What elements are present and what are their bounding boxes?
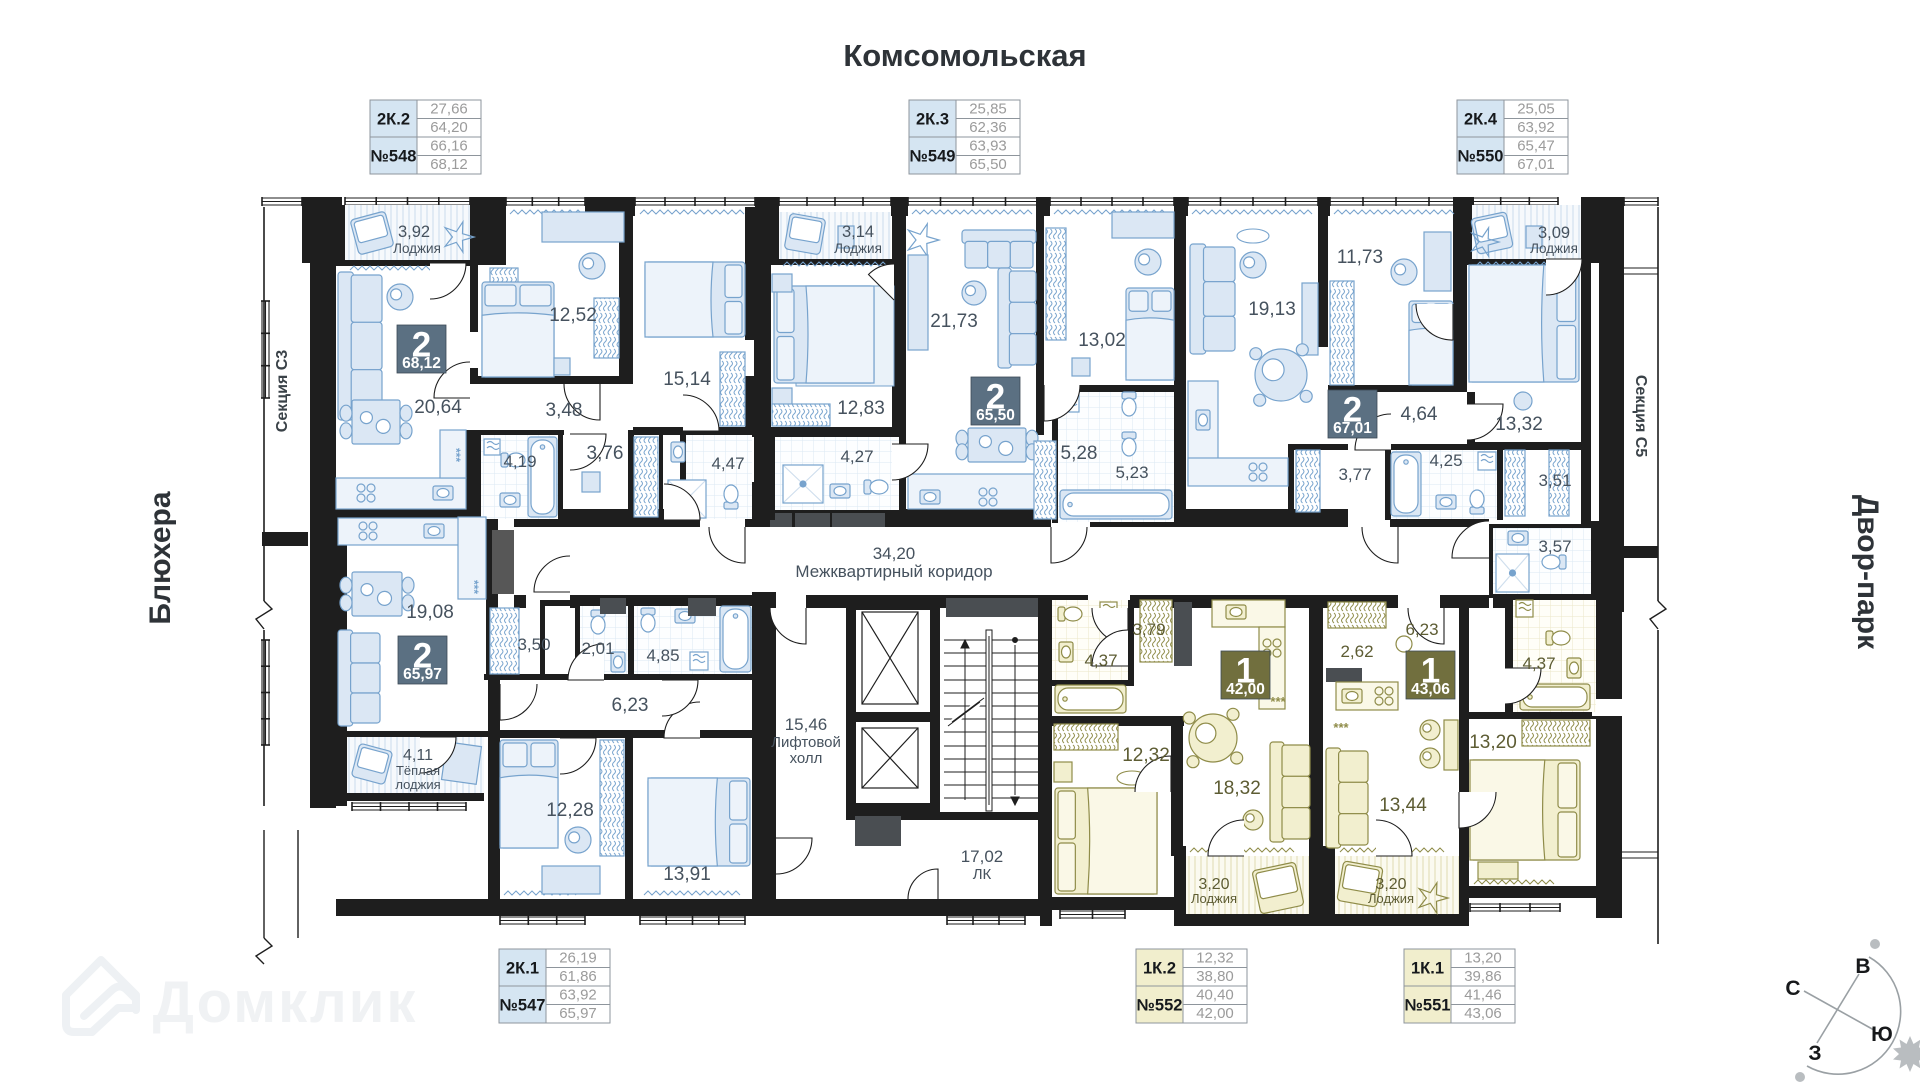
svg-text:№547: №547 [500, 997, 546, 1015]
svg-text:19,08: 19,08 [406, 602, 454, 623]
svg-text:65,50: 65,50 [969, 156, 1007, 173]
svg-text:4,27: 4,27 [840, 447, 873, 466]
svg-text:15,14: 15,14 [663, 369, 711, 390]
svg-text:12,28: 12,28 [546, 800, 594, 821]
svg-text:68,12: 68,12 [430, 156, 468, 173]
svg-text:34,20: 34,20 [873, 544, 916, 563]
svg-text:Лоджия: Лоджия [834, 241, 882, 256]
svg-text:20,64: 20,64 [414, 397, 462, 418]
svg-text:3,14: 3,14 [842, 223, 874, 241]
svg-text:65,97: 65,97 [403, 666, 442, 683]
svg-text:18,32: 18,32 [1213, 778, 1261, 799]
svg-text:Лоджия: Лоджия [1191, 891, 1237, 906]
svg-text:№551: №551 [1405, 997, 1451, 1015]
svg-text:5,23: 5,23 [1115, 463, 1148, 482]
svg-text:41,46: 41,46 [1464, 987, 1502, 1004]
svg-text:13,32: 13,32 [1495, 414, 1543, 435]
svg-text:Межквартирный коридор: Межквартирный коридор [795, 562, 992, 581]
svg-text:Лифтовой: Лифтовой [771, 734, 841, 751]
svg-text:Двор-парк: Двор-парк [1851, 495, 1884, 650]
svg-text:38,80: 38,80 [1196, 968, 1234, 985]
svg-text:12,32: 12,32 [1196, 950, 1234, 967]
svg-text:43,06: 43,06 [1464, 1005, 1502, 1022]
svg-text:2,62: 2,62 [1340, 642, 1373, 661]
svg-text:25,85: 25,85 [969, 101, 1007, 118]
svg-text:Ю: Ю [1871, 1023, 1893, 1046]
svg-text:4,11: 4,11 [403, 747, 433, 764]
svg-text:лоджия: лоджия [395, 777, 440, 792]
svg-text:68,12: 68,12 [402, 355, 441, 372]
svg-text:13,02: 13,02 [1078, 330, 1126, 351]
svg-text:№549: №549 [910, 148, 956, 166]
svg-text:4,37: 4,37 [1084, 651, 1117, 670]
svg-text:13,44: 13,44 [1379, 795, 1427, 816]
svg-text:63,93: 63,93 [969, 138, 1007, 155]
svg-text:ЛК: ЛК [973, 866, 992, 883]
svg-text:3,50: 3,50 [517, 635, 550, 654]
svg-text:61,86: 61,86 [559, 968, 597, 985]
svg-text:15,46: 15,46 [785, 715, 828, 734]
svg-text:3,92: 3,92 [398, 223, 430, 241]
svg-text:1К.1: 1К.1 [1411, 960, 1444, 978]
svg-text:2К.1: 2К.1 [506, 960, 539, 978]
svg-text:Тёплая: Тёплая [396, 763, 440, 778]
svg-text:***: *** [1270, 694, 1286, 709]
svg-text:В: В [1855, 955, 1870, 978]
svg-text:Секция С3: Секция С3 [274, 350, 291, 432]
svg-text:***: *** [449, 448, 463, 462]
svg-text:11,73: 11,73 [1337, 247, 1383, 268]
svg-text:3,76: 3,76 [587, 443, 624, 464]
svg-text:3,79: 3,79 [1132, 620, 1165, 639]
svg-text:65,50: 65,50 [976, 407, 1015, 424]
svg-text:4,47: 4,47 [711, 454, 744, 473]
svg-text:З: З [1808, 1042, 1821, 1065]
svg-text:2,01: 2,01 [581, 639, 614, 658]
svg-text:Домклик: Домклик [153, 970, 418, 1035]
svg-text:27,66: 27,66 [430, 101, 468, 118]
svg-text:12,32: 12,32 [1122, 745, 1170, 766]
svg-text:2К.3: 2К.3 [916, 111, 949, 129]
svg-text:***: *** [1333, 720, 1349, 735]
svg-text:19,13: 19,13 [1248, 299, 1296, 320]
svg-text:6,23: 6,23 [612, 695, 649, 716]
svg-text:17,02: 17,02 [961, 847, 1004, 866]
svg-text:Блюхера: Блюхера [144, 491, 177, 624]
svg-text:С: С [1785, 977, 1800, 1000]
svg-text:42,00: 42,00 [1226, 681, 1265, 698]
svg-text:39,86: 39,86 [1464, 968, 1502, 985]
svg-text:2К.2: 2К.2 [377, 111, 410, 129]
svg-text:4,37: 4,37 [1522, 654, 1555, 673]
svg-text:№548: №548 [371, 148, 417, 166]
svg-text:4,64: 4,64 [1401, 404, 1438, 425]
svg-text:3,77: 3,77 [1338, 465, 1371, 484]
svg-text:1К.2: 1К.2 [1143, 960, 1176, 978]
svg-text:6,23: 6,23 [1405, 620, 1438, 639]
svg-text:5,28: 5,28 [1061, 443, 1098, 464]
svg-text:66,16: 66,16 [430, 138, 468, 155]
svg-text:26,19: 26,19 [559, 950, 597, 967]
svg-text:3,09: 3,09 [1538, 224, 1570, 242]
svg-text:13,91: 13,91 [663, 864, 711, 885]
svg-text:***: *** [467, 580, 481, 594]
svg-text:3,48: 3,48 [546, 400, 583, 421]
svg-text:42,00: 42,00 [1196, 1005, 1234, 1022]
svg-text:Лоджия: Лоджия [393, 241, 441, 256]
svg-text:65,97: 65,97 [559, 1005, 597, 1022]
svg-text:65,47: 65,47 [1517, 138, 1555, 155]
svg-text:64,20: 64,20 [430, 119, 468, 136]
svg-text:3,51: 3,51 [1538, 471, 1571, 490]
svg-text:67,01: 67,01 [1333, 420, 1372, 437]
svg-text:62,36: 62,36 [969, 119, 1007, 136]
svg-text:Лоджия: Лоджия [1530, 241, 1578, 256]
svg-text:12,83: 12,83 [837, 398, 885, 419]
svg-text:Комсомольская: Комсомольская [843, 38, 1086, 73]
svg-text:Лоджия: Лоджия [1368, 891, 1414, 906]
svg-text:21,73: 21,73 [930, 311, 978, 332]
svg-text:№552: №552 [1137, 997, 1183, 1015]
svg-text:63,92: 63,92 [1517, 119, 1555, 136]
svg-text:холл: холл [790, 750, 823, 767]
svg-text:25,05: 25,05 [1517, 101, 1555, 118]
svg-text:№550: №550 [1458, 148, 1504, 166]
svg-text:63,92: 63,92 [559, 987, 597, 1004]
svg-text:13,20: 13,20 [1464, 950, 1502, 967]
svg-text:4,19: 4,19 [503, 452, 536, 471]
svg-text:Секция С5: Секция С5 [1632, 375, 1649, 457]
svg-text:40,40: 40,40 [1196, 987, 1234, 1004]
svg-text:67,01: 67,01 [1517, 156, 1555, 173]
svg-text:2К.4: 2К.4 [1464, 111, 1498, 129]
svg-text:3,57: 3,57 [1538, 537, 1571, 556]
svg-text:4,25: 4,25 [1429, 451, 1462, 470]
svg-text:13,20: 13,20 [1469, 732, 1517, 753]
svg-text:4,85: 4,85 [646, 646, 679, 665]
svg-text:43,06: 43,06 [1411, 681, 1450, 698]
svg-text:12,52: 12,52 [549, 305, 597, 326]
